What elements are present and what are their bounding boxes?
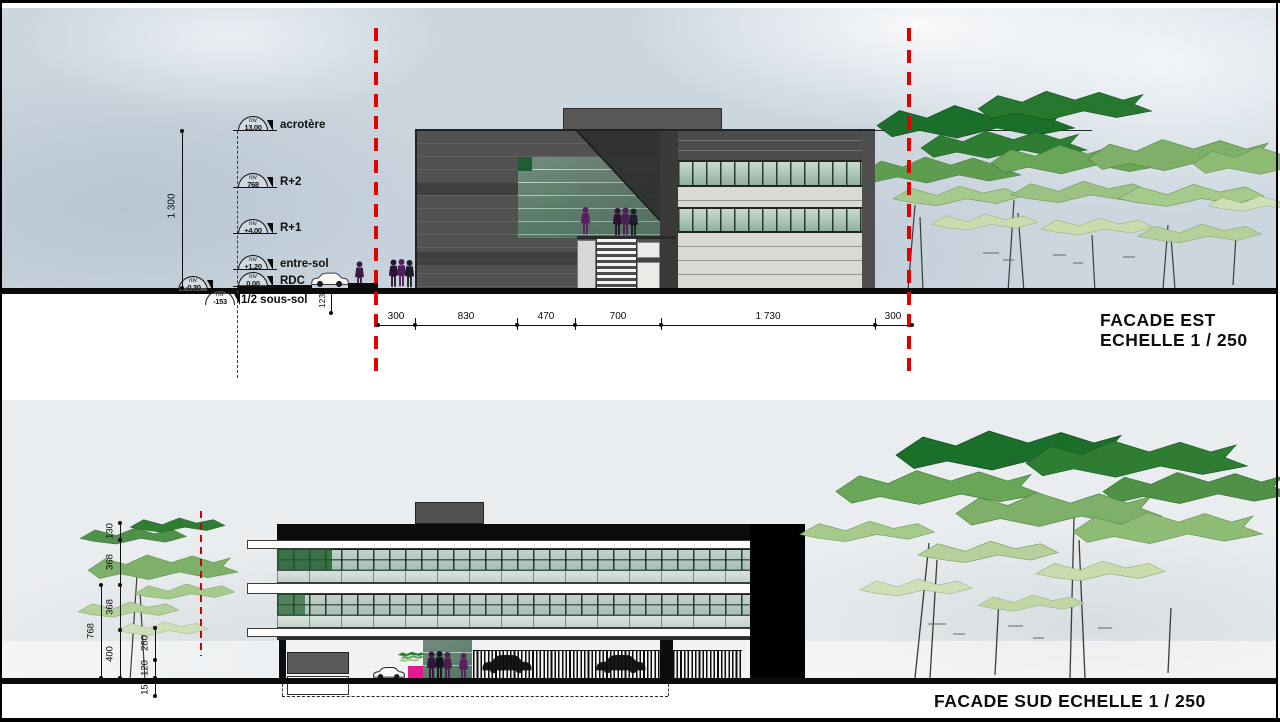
- est-base-cladding: [678, 233, 862, 290]
- level-label: acrotère: [280, 119, 325, 131]
- sud-glass-ribbon-r1-lower: [277, 615, 757, 628]
- est-width-dim-chain: [378, 325, 912, 326]
- est-height-dim-label: 1 300: [167, 193, 178, 218]
- sud-right-tree-cluster: [778, 428, 1240, 685]
- person-figure: [404, 259, 415, 289]
- level-marker-soussol: niv-153 1/2 sous-sol: [205, 290, 235, 305]
- sud-title: FACADE SUD ECHELLE 1 / 250: [934, 691, 1206, 711]
- est-glass-accent: [518, 157, 532, 171]
- sud-pilotis-column: [660, 640, 673, 682]
- est-base-panel: [577, 240, 596, 290]
- est-corner-pier: [862, 131, 875, 290]
- est-dark-pier: [660, 131, 678, 290]
- level-flag-icon: [267, 259, 273, 270]
- sud-axis-line: [200, 511, 202, 656]
- level-label: R+1: [280, 222, 301, 234]
- level-flag-icon: [267, 223, 273, 234]
- est-building-outline-top: [415, 129, 875, 131]
- width-dim-label: 300: [388, 311, 405, 322]
- sud-dim-label: 368: [105, 554, 116, 570]
- est-building-outline-left: [415, 129, 417, 290]
- level-marker-r1: niv+4,00 R+1: [238, 219, 268, 234]
- car-figure: [310, 270, 350, 288]
- est-title-line1: FACADE EST: [1100, 310, 1248, 330]
- basement-outline: [668, 684, 669, 696]
- level-flag-icon: [234, 294, 240, 305]
- est-height-dim-line: [182, 131, 183, 289]
- est-tree-cluster: [863, 85, 1280, 295]
- width-dim-label: 1 730: [755, 311, 780, 322]
- width-dim-label: 830: [458, 311, 475, 322]
- sud-level-dim-line: [120, 523, 121, 678]
- sud-roof-penthouse: [415, 502, 484, 524]
- est-spandrel-band: [678, 187, 862, 207]
- person-figure: [442, 651, 453, 681]
- width-dim-label: 470: [538, 311, 555, 322]
- sud-ground-line: [2, 678, 1276, 684]
- niv-value: -153: [206, 298, 234, 305]
- sud-white-band-low: [247, 628, 757, 637]
- sud-pilotis-column: [279, 640, 286, 682]
- sud-dim-label: 120: [140, 660, 151, 676]
- sud-white-band-top: [247, 540, 757, 549]
- frame-right: [1276, 0, 1278, 722]
- est-white-panel: [637, 242, 660, 258]
- level-label: entre-sol: [280, 258, 329, 270]
- frame-left: [0, 0, 2, 722]
- sud-glass-ribbon-r2-lower: [277, 570, 757, 583]
- est-window-ribbon-r2: [678, 160, 862, 187]
- frame-bottom: [0, 718, 1280, 722]
- est-title: FACADE EST ECHELLE 1 / 250: [1100, 310, 1248, 350]
- level-flag-icon: [267, 276, 273, 287]
- level-label: 1/2 sous-sol: [241, 294, 307, 306]
- sud-outer-dim-line: [101, 585, 102, 678]
- est-white-panel: [637, 262, 660, 290]
- width-dim-label: 700: [610, 311, 627, 322]
- est-window-ribbon-r1: [678, 207, 862, 233]
- sud-white-band-mid: [247, 583, 757, 594]
- sud-annex-box: [287, 652, 349, 674]
- frame-top: [0, 0, 1280, 3]
- sud-left-tree: [68, 505, 268, 683]
- level-marker-r2: niv768 R+2: [238, 173, 268, 188]
- level-marker-acrotere: niv13,00 acrotère: [238, 116, 268, 131]
- person-figure: [628, 207, 639, 238]
- est-parapet-band: [678, 131, 862, 160]
- sud-dim-label: 768: [86, 623, 97, 639]
- basement-outline: [282, 684, 283, 696]
- sud-dim-label: 153: [140, 679, 151, 695]
- sud-glass-reflection: [277, 549, 332, 570]
- sud-dim-label: 280: [140, 635, 151, 651]
- level-flag-icon: [267, 120, 273, 131]
- sud-glass-ribbon-r2: [277, 549, 757, 570]
- level-label: R+2: [280, 176, 301, 188]
- person-figure: [580, 205, 591, 237]
- drawing-sheet: niv13,00 acrotère niv768 R+2 niv+4,00 R+…: [0, 0, 1280, 722]
- level-flag-icon: [267, 177, 273, 188]
- level-marker-rdc: niv0,00 RDC: [238, 272, 268, 287]
- est-title-line2: ECHELLE 1 / 250: [1100, 330, 1248, 350]
- est-step-dim-label: 123: [317, 294, 327, 308]
- sud-parapet-band: [277, 524, 805, 541]
- sud-small-dim-line: [155, 628, 156, 696]
- width-dim-label: 300: [885, 311, 902, 322]
- est-roof-penthouse: [563, 108, 722, 131]
- est-step-dim-line: [331, 292, 332, 313]
- sud-glass-ribbon-r1: [277, 594, 757, 615]
- sud-glass-reflection: [277, 594, 305, 615]
- level-marker-entresol: niv+1,20 entre-sol: [238, 255, 268, 270]
- est-entrance-stairs: [596, 238, 637, 290]
- sud-dim-label: 368: [105, 599, 116, 615]
- sud-dim-label: 400: [105, 646, 116, 662]
- basement-outline: [282, 696, 668, 697]
- level-label: RDC: [280, 275, 305, 287]
- sud-dim-label: 130: [105, 523, 116, 539]
